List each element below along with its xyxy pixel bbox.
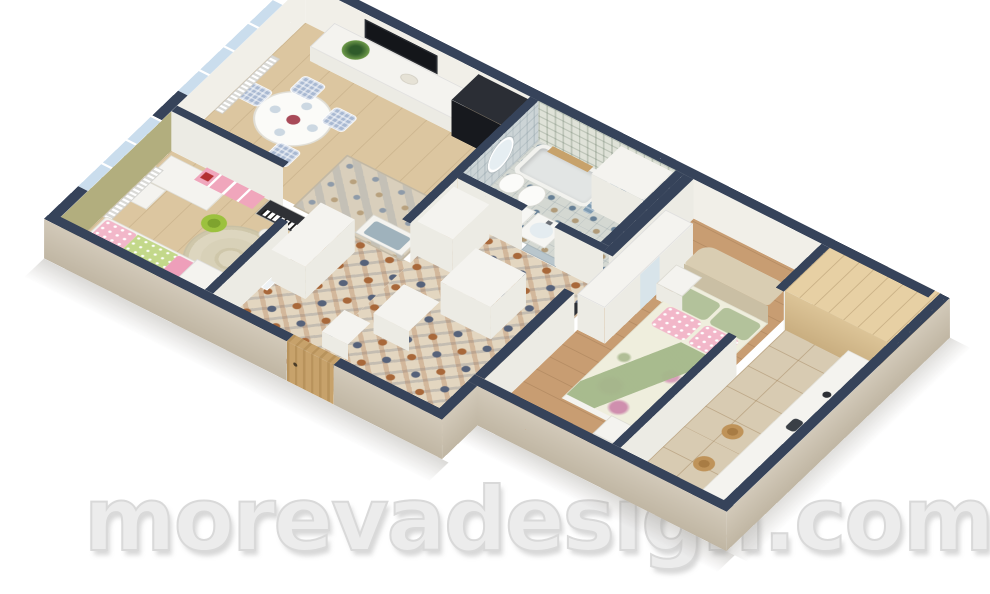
- plate: [305, 123, 320, 134]
- plate: [299, 101, 314, 112]
- floorplan-render: morevadesign.com: [0, 0, 990, 594]
- plate: [272, 127, 287, 138]
- table-centerpiece: [284, 113, 304, 127]
- fruit-bowl: [397, 71, 421, 86]
- door-handle: [293, 362, 297, 368]
- plate: [267, 104, 282, 115]
- books: [200, 172, 214, 182]
